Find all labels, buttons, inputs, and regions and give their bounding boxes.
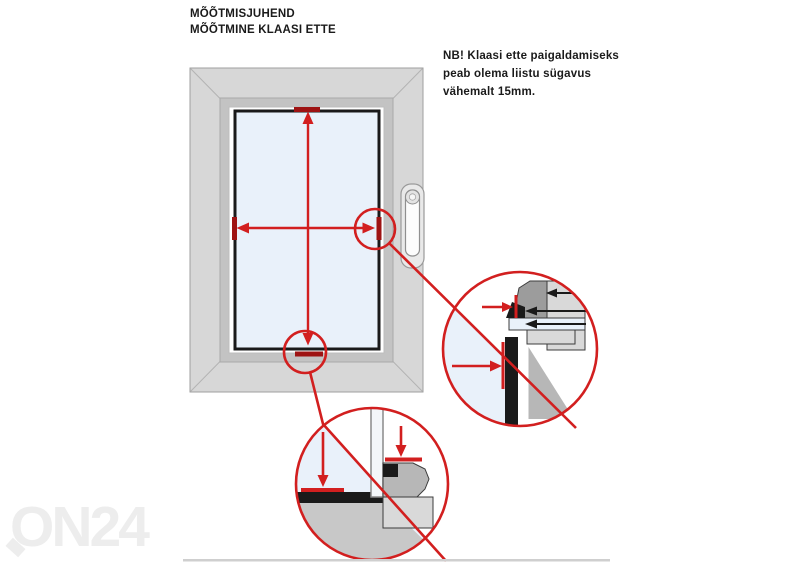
note-line-2: peab olema liistu sügavus (443, 65, 619, 83)
page-title: MÕÕTMISJUHEND MÕÕTMINE KLAASI ETTE (190, 6, 336, 38)
window-handle-icon (401, 184, 424, 268)
watermark-logo: ON24 (10, 494, 147, 560)
detail-bottom-section (290, 372, 451, 563)
bottom-divider-line (183, 559, 610, 562)
title-line-2: MÕÕTMINE KLAASI ETTE (190, 22, 336, 38)
measuring-guide-illustration (0, 0, 792, 566)
window-illustration (190, 68, 424, 392)
note-line-1: NB! Klaasi ette paigaldamiseks (443, 47, 619, 65)
title-line-1: MÕÕTMISJUHEND (190, 6, 336, 22)
note-text: NB! Klaasi ette paigaldamiseks peab olem… (443, 47, 619, 101)
note-line-3: vähemalt 15mm. (443, 83, 619, 101)
